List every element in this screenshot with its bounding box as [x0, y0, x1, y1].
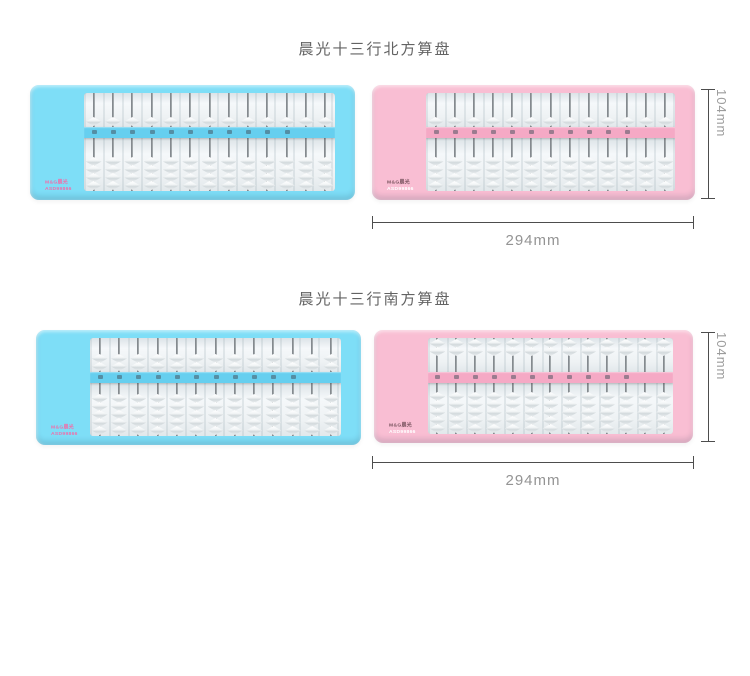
bead [504, 165, 520, 174]
beam-cell [483, 127, 502, 138]
rod-cell-upper [181, 93, 200, 127]
rod-cell-upper [447, 338, 466, 372]
bead [298, 157, 314, 166]
rod-cell-lower [103, 138, 122, 191]
upper-beads [169, 354, 185, 371]
bead [202, 173, 218, 182]
place-value-mark [208, 130, 213, 134]
bead [638, 117, 654, 126]
rod-cell-upper [225, 338, 244, 372]
upper-beads [485, 117, 501, 126]
bead [580, 408, 596, 417]
bead [188, 410, 204, 419]
bead [561, 347, 577, 356]
bead [428, 117, 444, 126]
bead [182, 117, 198, 126]
bead [600, 117, 616, 126]
lower-beads [130, 394, 146, 435]
lower-beads [656, 392, 672, 433]
bead [562, 181, 578, 190]
upper-deck [426, 93, 675, 127]
rod-cell-upper [245, 338, 264, 372]
bead [202, 117, 218, 126]
bead [304, 426, 320, 435]
bead [163, 157, 179, 166]
bead [323, 410, 339, 419]
bead [240, 165, 256, 174]
rod-cell-lower [123, 138, 142, 191]
bead [657, 157, 673, 166]
bead [317, 165, 333, 174]
bead [562, 157, 578, 166]
bead [130, 426, 146, 435]
rod-cell-lower [598, 138, 617, 191]
bead [580, 424, 596, 433]
bead [505, 347, 521, 356]
beam-cell [161, 127, 180, 138]
bead [504, 157, 520, 166]
width-dimension-label: 294mm [372, 472, 694, 489]
rod-cell-upper [200, 93, 219, 127]
width-dimension-label: 294mm [372, 232, 694, 249]
bead [279, 157, 295, 166]
beam-cell [239, 127, 258, 138]
beam-cell [503, 372, 522, 383]
beam-cell [598, 127, 617, 138]
place-value-mark [606, 130, 611, 134]
upper-beads [429, 339, 445, 356]
abacus-inner-panel [426, 93, 675, 191]
bead [523, 165, 539, 174]
place-value-mark [510, 130, 515, 134]
rod-cell-lower [148, 383, 167, 436]
rod-cell-upper [316, 93, 335, 127]
lower-beads [202, 157, 218, 190]
model-number: ASD99866 [51, 430, 78, 436]
rod-cell-upper [129, 338, 148, 372]
beam-cell [264, 372, 283, 383]
place-value-mark [586, 375, 591, 379]
rod-cell-upper [239, 93, 258, 127]
bead [130, 394, 146, 403]
bead [246, 402, 262, 411]
upper-deck [84, 93, 335, 127]
rod-cell-upper [560, 338, 579, 372]
place-value-mark [491, 130, 496, 134]
bead [304, 418, 320, 427]
rod-cell-upper [428, 338, 447, 372]
beam-cell [258, 127, 277, 138]
rod-cell-upper [483, 93, 502, 127]
dimension-cap [693, 456, 694, 469]
bead [486, 347, 502, 356]
bead [523, 117, 539, 126]
beam-cell [109, 372, 128, 383]
bead [130, 410, 146, 419]
bead [130, 418, 146, 427]
bead [265, 410, 281, 419]
bead [259, 165, 275, 174]
beam-cell [206, 372, 225, 383]
bead [221, 173, 237, 182]
lower-beads [279, 157, 295, 190]
bead [259, 117, 275, 126]
height-dimension-south: 104mm [700, 332, 738, 442]
bead [124, 173, 140, 182]
bead [523, 157, 539, 166]
lower-beads [599, 392, 615, 433]
bead [542, 416, 558, 425]
dimension-line [372, 462, 694, 463]
bead [182, 165, 198, 174]
beam-cell [579, 372, 598, 383]
upper-beads [486, 339, 502, 356]
bead [188, 362, 204, 371]
bead [298, 181, 314, 190]
place-value-mark [624, 375, 629, 379]
rod-cell-lower [579, 138, 598, 191]
lower-beads [600, 157, 616, 190]
bead [656, 347, 672, 356]
bead [599, 424, 615, 433]
bead [188, 394, 204, 403]
bead [304, 410, 320, 419]
lower-beads [246, 394, 262, 435]
bead [561, 408, 577, 417]
rod-cell-lower [167, 383, 186, 436]
bead [619, 181, 635, 190]
bead [637, 347, 653, 356]
bead [92, 426, 108, 435]
rod-cell-lower [618, 138, 637, 191]
rod-cell-upper [258, 93, 277, 127]
bead [124, 117, 140, 126]
bead [130, 354, 146, 363]
lower-beads [221, 157, 237, 190]
place-value-mark [169, 130, 174, 134]
lower-beads [323, 394, 339, 435]
bead [618, 400, 634, 409]
height-dimension-label: 104mm [714, 89, 729, 199]
bead [105, 165, 121, 174]
bead [486, 392, 502, 401]
place-value-mark [285, 130, 290, 134]
bead [543, 117, 559, 126]
bead [657, 181, 673, 190]
bead [447, 157, 463, 166]
model-number: ASD99866 [387, 185, 414, 191]
bead [298, 117, 314, 126]
bead [246, 410, 262, 419]
bead [637, 416, 653, 425]
beam-cell [618, 127, 637, 138]
bead [169, 426, 185, 435]
beam-cell [466, 372, 485, 383]
brand-logo: M&G晨光ASD99866 [389, 422, 416, 434]
bead [562, 173, 578, 182]
bead [638, 181, 654, 190]
abacus-inner-panel [84, 93, 335, 191]
brand-name: M&G晨光 [51, 424, 78, 430]
rod-cell-lower [206, 383, 225, 436]
rod-cell-lower [541, 138, 560, 191]
bead [467, 408, 483, 417]
bead [208, 362, 224, 371]
bead [618, 416, 634, 425]
beam-cell [635, 372, 654, 383]
bead [637, 400, 653, 409]
beam-cell [560, 127, 579, 138]
bead [428, 157, 444, 166]
place-value-mark [194, 375, 199, 379]
lower-beads [317, 157, 333, 190]
lower-beads [637, 392, 653, 433]
rod-cell-lower [239, 138, 258, 191]
bead [86, 173, 102, 182]
bead [246, 354, 262, 363]
bead [259, 157, 275, 166]
rod-cell-lower [219, 138, 238, 191]
bead [618, 424, 634, 433]
rod-cell-lower [90, 383, 109, 436]
bead [524, 416, 540, 425]
bead [486, 416, 502, 425]
bead [504, 173, 520, 182]
bead [543, 173, 559, 182]
bead [279, 173, 295, 182]
place-value-mark [435, 375, 440, 379]
rod-cell-upper [598, 338, 617, 372]
lower-beads [485, 157, 501, 190]
rod-cell-upper [654, 338, 673, 372]
beam-cell [428, 372, 447, 383]
place-value-mark [252, 375, 257, 379]
upper-beads [298, 117, 314, 126]
lower-beads [227, 394, 243, 435]
place-value-mark [530, 375, 535, 379]
bead [562, 165, 578, 174]
bead [221, 181, 237, 190]
abacus-photo-north-blue: M&G晨光ASD99866 [30, 85, 355, 200]
upper-beads [542, 339, 558, 356]
beam-cell [656, 127, 675, 138]
upper-beads [188, 354, 204, 371]
bead [285, 394, 301, 403]
lower-beads [466, 157, 482, 190]
lower-deck [84, 138, 335, 191]
lower-beads [447, 157, 463, 190]
place-value-mark [511, 375, 516, 379]
dimension-line [708, 332, 709, 442]
lower-beads [543, 157, 559, 190]
bead [656, 339, 672, 348]
place-value-mark [188, 130, 193, 134]
rod-cell-lower [656, 138, 675, 191]
bead [150, 426, 166, 435]
bead [279, 181, 295, 190]
bead [581, 117, 597, 126]
bead [221, 117, 237, 126]
bead [656, 408, 672, 417]
bead [467, 416, 483, 425]
bead [656, 392, 672, 401]
lower-beads [486, 392, 502, 433]
bead [523, 181, 539, 190]
bead [221, 165, 237, 174]
brand-logo: M&G晨光ASD99866 [387, 179, 414, 191]
rod-cell-lower [181, 138, 200, 191]
bead [265, 354, 281, 363]
bead [466, 157, 482, 166]
bead [580, 416, 596, 425]
bead [169, 418, 185, 427]
beam [428, 372, 673, 383]
bead [279, 117, 295, 126]
bead [486, 400, 502, 409]
beam-cell [181, 127, 200, 138]
bead [657, 173, 673, 182]
bead [259, 181, 275, 190]
rod-cell-upper [302, 338, 321, 372]
bead [600, 165, 616, 174]
place-value-mark [136, 375, 141, 379]
bead [323, 402, 339, 411]
bead [265, 394, 281, 403]
bead [304, 402, 320, 411]
rod-cell-lower [541, 383, 560, 434]
rod-cell-upper [167, 338, 186, 372]
bead [208, 354, 224, 363]
bead [111, 410, 127, 419]
rod-cell-upper [109, 338, 128, 372]
bead [466, 165, 482, 174]
lower-beads [285, 394, 301, 435]
bead [285, 410, 301, 419]
upper-beads [208, 354, 224, 371]
bead [259, 173, 275, 182]
bead [304, 354, 320, 363]
bead [485, 173, 501, 182]
bead [619, 157, 635, 166]
upper-beads [657, 117, 673, 126]
abacus-inner-panel [428, 338, 673, 434]
bead [638, 157, 654, 166]
bead [485, 157, 501, 166]
beam [90, 372, 341, 383]
bead [86, 165, 102, 174]
bead [150, 418, 166, 427]
place-value-mark [92, 130, 97, 134]
bead [144, 157, 160, 166]
rod-cell-lower [637, 138, 656, 191]
abacus-photo-south-blue: M&G晨光ASD99866 [36, 330, 361, 445]
place-value-mark [246, 130, 251, 134]
bead [144, 173, 160, 182]
bead [188, 418, 204, 427]
bead [92, 402, 108, 411]
bead [163, 173, 179, 182]
place-value-mark [130, 130, 135, 134]
bead [86, 157, 102, 166]
place-value-mark [568, 130, 573, 134]
beam-cell [426, 127, 445, 138]
beam-cell [654, 372, 673, 383]
rod-cell-lower [316, 138, 335, 191]
rod-cell-lower [84, 138, 103, 191]
rod-cell-lower [464, 138, 483, 191]
bead [144, 165, 160, 174]
bead [240, 173, 256, 182]
bead [188, 402, 204, 411]
bead [246, 418, 262, 427]
bead [448, 347, 464, 356]
rod-cell-lower [283, 383, 302, 436]
bead [105, 157, 121, 166]
bead [619, 165, 635, 174]
bead [486, 339, 502, 348]
rod-cell-upper [123, 93, 142, 127]
place-value-mark [227, 130, 232, 134]
beam-cell [316, 127, 335, 138]
upper-beads [524, 339, 540, 356]
lower-beads [657, 157, 673, 190]
bead [169, 394, 185, 403]
bead [600, 173, 616, 182]
upper-beads [599, 339, 615, 356]
lower-beads [169, 394, 185, 435]
upper-beads [227, 354, 243, 371]
rod-cell-lower [579, 383, 598, 434]
upper-beads [92, 354, 108, 371]
bead [323, 418, 339, 427]
bead [304, 394, 320, 403]
rod-cell-upper [522, 338, 541, 372]
bead [505, 392, 521, 401]
beam-cell [277, 127, 296, 138]
rod-cell-upper [503, 93, 522, 127]
bead [124, 181, 140, 190]
bead [227, 410, 243, 419]
lower-beads [298, 157, 314, 190]
lower-beads [562, 157, 578, 190]
bead [485, 117, 501, 126]
beam-cell [560, 372, 579, 383]
section-title-north: 晨光十三行北方算盘 [0, 38, 750, 59]
brand-logo: M&G晨光ASD99866 [45, 179, 72, 191]
bead [169, 410, 185, 419]
rod-cell-upper [541, 93, 560, 127]
rod-cell-lower [426, 138, 445, 191]
upper-beads [447, 117, 463, 126]
bead [246, 426, 262, 435]
bead [208, 394, 224, 403]
bead [285, 418, 301, 427]
bead [169, 354, 185, 363]
bead [448, 408, 464, 417]
upper-beads [581, 117, 597, 126]
beam-cell [637, 127, 656, 138]
beam [84, 127, 335, 138]
beam-cell [522, 372, 541, 383]
rod-cell-upper [296, 93, 315, 127]
brand-name: M&G晨光 [389, 422, 416, 428]
bead [656, 424, 672, 433]
bead [543, 181, 559, 190]
bead [561, 392, 577, 401]
rod-cell-upper [161, 93, 180, 127]
rod-cell-lower [485, 383, 504, 434]
upper-beads [323, 354, 339, 371]
